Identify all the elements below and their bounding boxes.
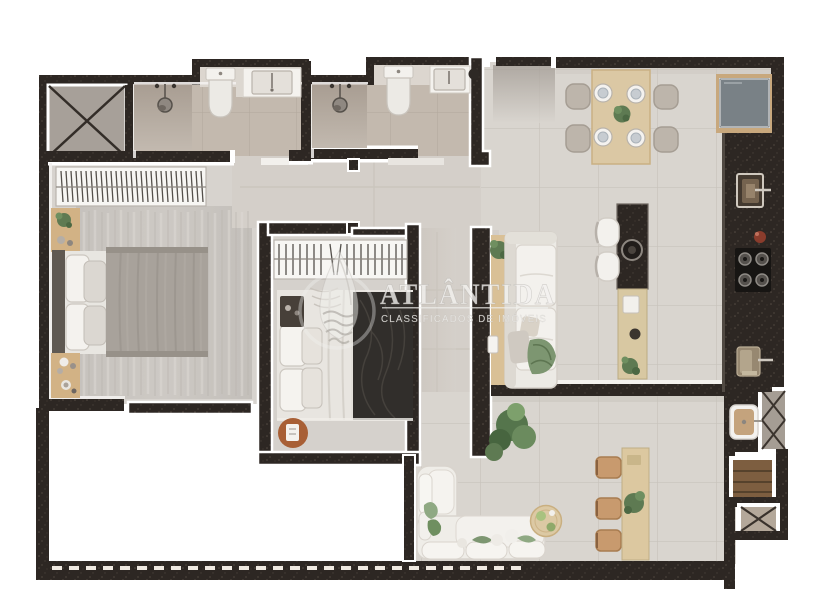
svg-text:CLASSIFICADOS DE IMÓVEIS: CLASSIFICADOS DE IMÓVEIS bbox=[381, 312, 547, 325]
svg-text:ATLÂNTIDA: ATLÂNTIDA bbox=[380, 278, 556, 311]
